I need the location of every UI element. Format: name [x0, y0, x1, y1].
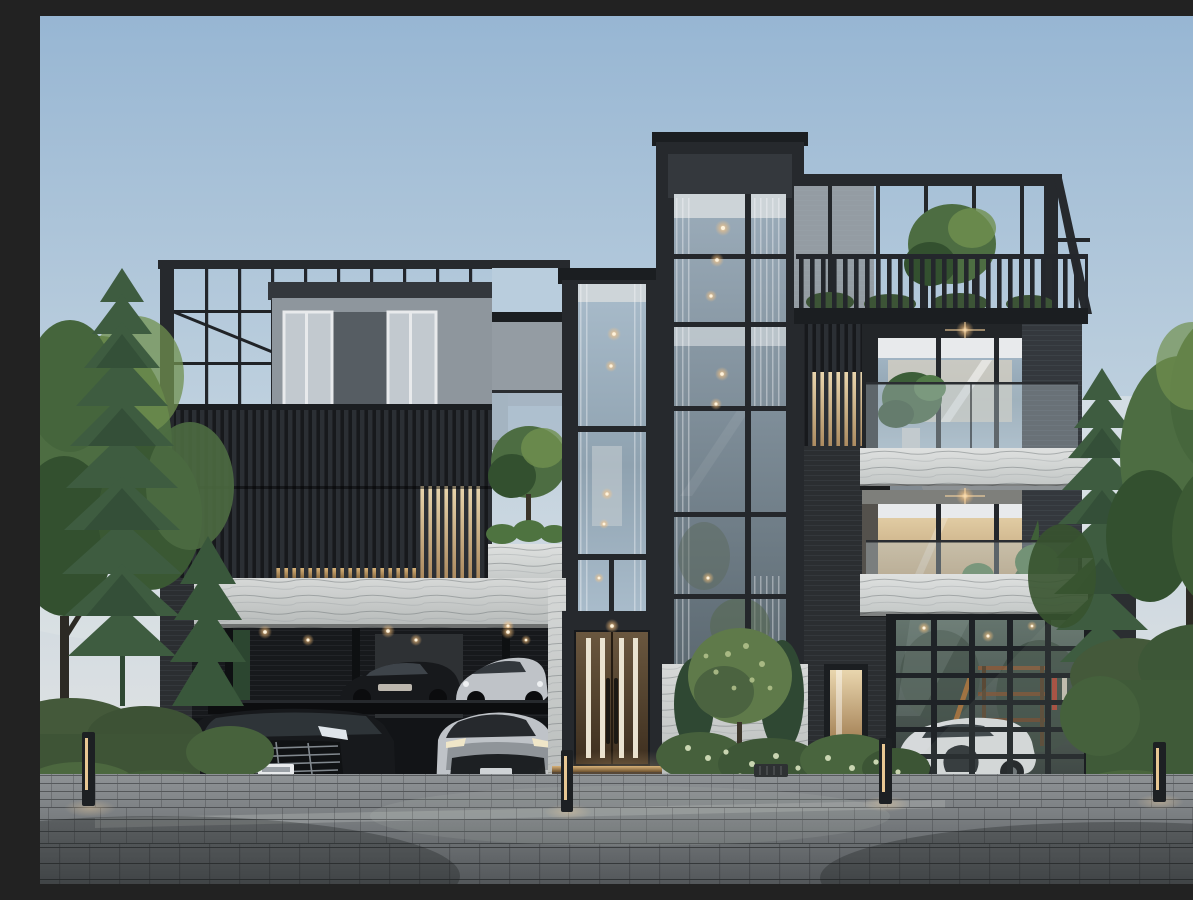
mid-terrace-tree-planter — [486, 268, 568, 584]
architectural-render: Dusk rendering of a modern charcoal and … — [40, 16, 1193, 884]
driveway — [40, 764, 1193, 884]
balcony-upper — [860, 321, 1088, 490]
stair-glass-tower — [558, 268, 666, 616]
main-glass-tower — [652, 132, 808, 664]
entry-door — [576, 632, 648, 764]
drain-grate — [754, 764, 788, 777]
